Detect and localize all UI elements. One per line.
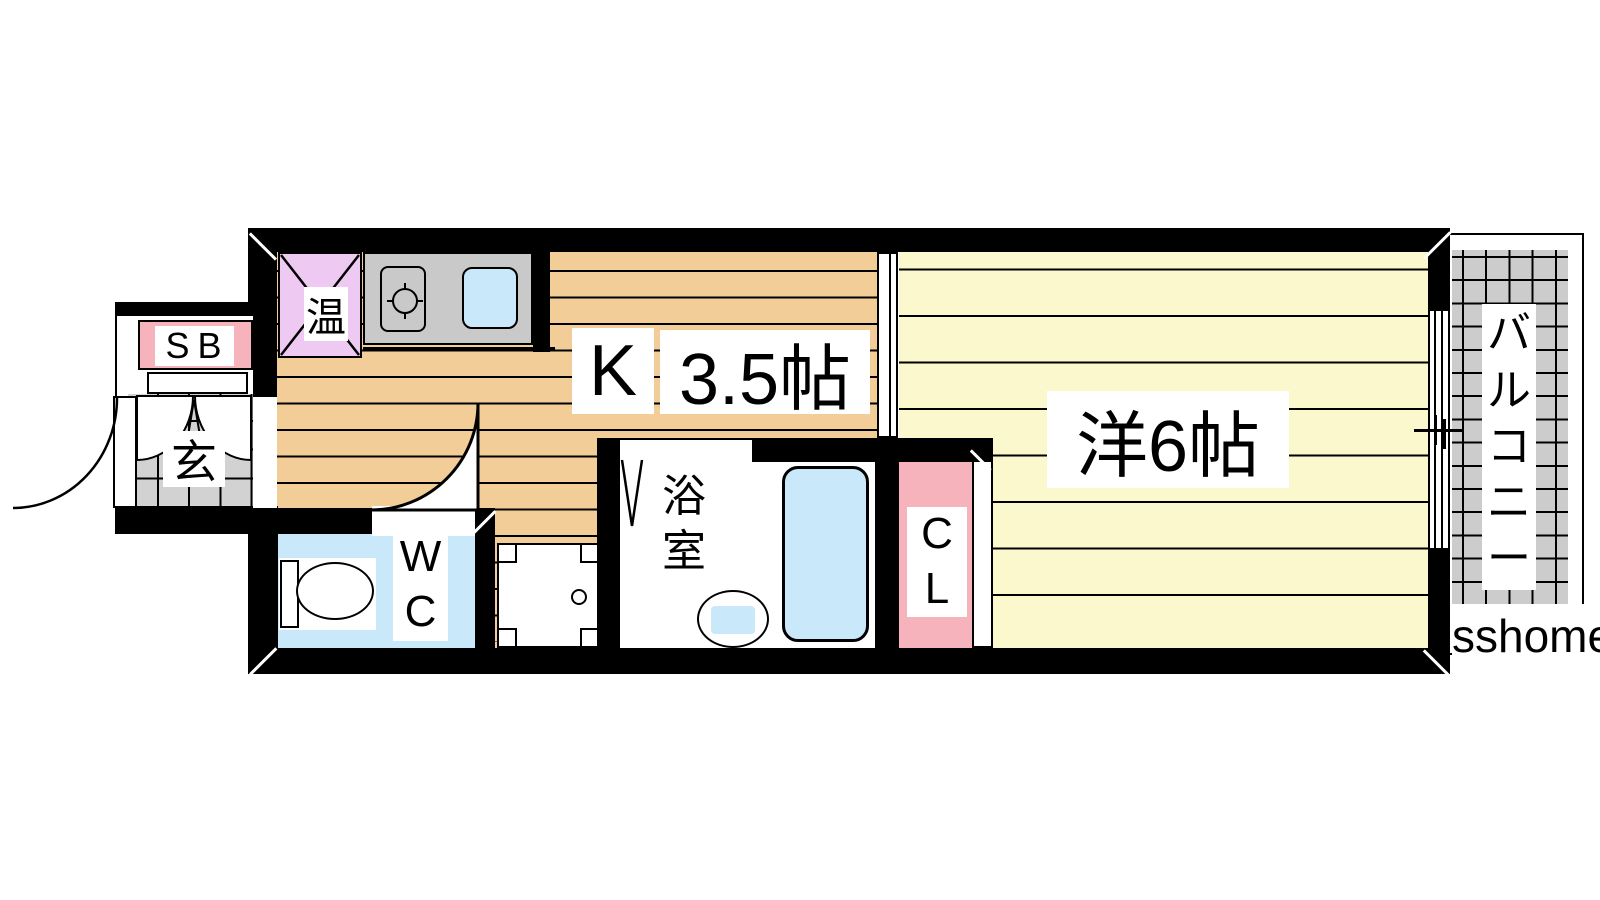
washer-pan-notch <box>497 543 517 563</box>
window-latch-icon <box>1443 419 1446 449</box>
washer-pan-notch <box>497 628 517 648</box>
opening-genkan-kitchen <box>253 397 277 508</box>
entrance-wall-left-line <box>115 316 117 398</box>
wall-top <box>248 228 1450 252</box>
kitchen-label-k: K <box>572 328 654 414</box>
closet-label: C L <box>907 507 967 617</box>
watermark-label: sshome <box>1452 604 1600 668</box>
entrance-label: 玄 <box>163 431 225 487</box>
shoe-box-front <box>147 372 248 394</box>
wall-right-lower <box>1428 550 1450 650</box>
balcony-label: バ ル コ ニ ー <box>1482 304 1536 590</box>
window-latch-icon <box>1434 415 1437 445</box>
burner-icon <box>392 288 418 314</box>
floor-plan: バ ル コ ニ ー SB 玄 温 K 3.5帖 <box>0 0 1600 900</box>
wall-left-upper <box>248 228 277 306</box>
shoe-box-label: SB <box>155 326 234 366</box>
wall-genkan-kitchen <box>253 302 277 397</box>
entrance-wall-bottom <box>115 508 277 534</box>
sliding-door <box>877 252 898 438</box>
sink <box>462 267 518 329</box>
closet-door <box>972 460 993 648</box>
wc-label: W C <box>393 529 448 641</box>
bath-folding-door-icon <box>616 456 660 534</box>
bathtub <box>782 466 869 642</box>
water-heater-label: 温 <box>304 287 348 341</box>
washer-pan <box>497 543 600 648</box>
wall-stub-counter <box>533 252 550 352</box>
wash-basin-bowl <box>711 606 755 634</box>
western-room-label: 洋6帖 <box>1047 391 1289 488</box>
wall-right-upper <box>1428 252 1450 309</box>
washer-pan-drain-icon <box>571 589 587 605</box>
toilet-bowl-icon <box>296 562 374 620</box>
wc-wall-top <box>277 508 372 534</box>
window-latch-icon <box>1414 429 1462 432</box>
kitchen-label-size: 3.5帖 <box>660 330 870 414</box>
wall-bottom <box>248 648 1450 674</box>
sliding-door-track-line <box>889 254 891 436</box>
entry-door-arc-icon <box>5 390 125 515</box>
bath-label: 浴 室 <box>655 470 713 580</box>
counter-edge-line <box>363 347 555 350</box>
wc-door-icon <box>365 398 485 518</box>
bath-closet-divider-wall <box>875 438 899 648</box>
